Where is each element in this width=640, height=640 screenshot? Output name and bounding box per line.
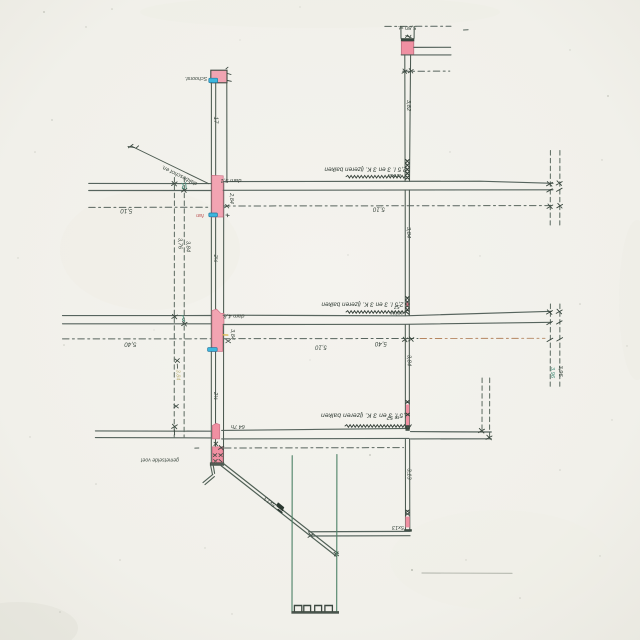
- svg-text:dam 5,1: dam 5,1: [221, 177, 242, 183]
- svg-text:dam 4,8: dam 4,8: [223, 313, 245, 319]
- svg-text:5,10: 5,10: [120, 207, 133, 214]
- svg-text:2,5 l. 3 en 3 K. ijzeren balke: 2,5 l. 3 en 3 K. ijzeren balken: [324, 166, 407, 173]
- svg-text:3,84: 3,84: [405, 227, 411, 238]
- svg-text:3,13: 3,13: [406, 468, 412, 480]
- svg-text:5x13: 5x13: [391, 524, 404, 530]
- svg-text:3,96: 3,96: [557, 365, 563, 377]
- svg-text:anker: anker: [390, 310, 403, 316]
- svg-text:57: 57: [394, 303, 400, 309]
- svg-text:64 7h: 64 7h: [231, 423, 245, 429]
- svg-text:2½: 2½: [212, 254, 219, 263]
- svg-text:3,84: 3,84: [175, 370, 181, 381]
- svg-text:gemetselde voet: gemetselde voet: [140, 457, 179, 463]
- svg-text:5,10: 5,10: [315, 344, 327, 350]
- svg-text:3,84: 3,84: [185, 241, 191, 252]
- svg-text:Schoorst.: Schoorst.: [185, 75, 207, 81]
- svg-text:3,76: 3,76: [177, 238, 183, 250]
- svg-text:17: 17: [212, 117, 218, 124]
- svg-text:5,40: 5,40: [374, 340, 387, 347]
- svg-text:3,82: 3,82: [405, 100, 411, 112]
- svg-text:3,84: 3,84: [405, 355, 411, 366]
- svg-text:m 5?: m 5?: [386, 414, 399, 420]
- svg-text:2,5 l. 3 en 3 K. ijzeren balke: 2,5 l. 3 en 3 K. ijzeren balken: [321, 301, 404, 308]
- svg-text:fan: fan: [196, 212, 204, 218]
- svg-text:5,40: 5,40: [124, 341, 137, 348]
- svg-text:3,96: 3,96: [549, 367, 555, 379]
- svg-text:2,84: 2,84: [228, 192, 234, 204]
- svg-text:anker: anker: [386, 172, 401, 178]
- svg-text:5,10: 5,10: [372, 206, 385, 213]
- svg-text:2½: 2½: [212, 391, 219, 400]
